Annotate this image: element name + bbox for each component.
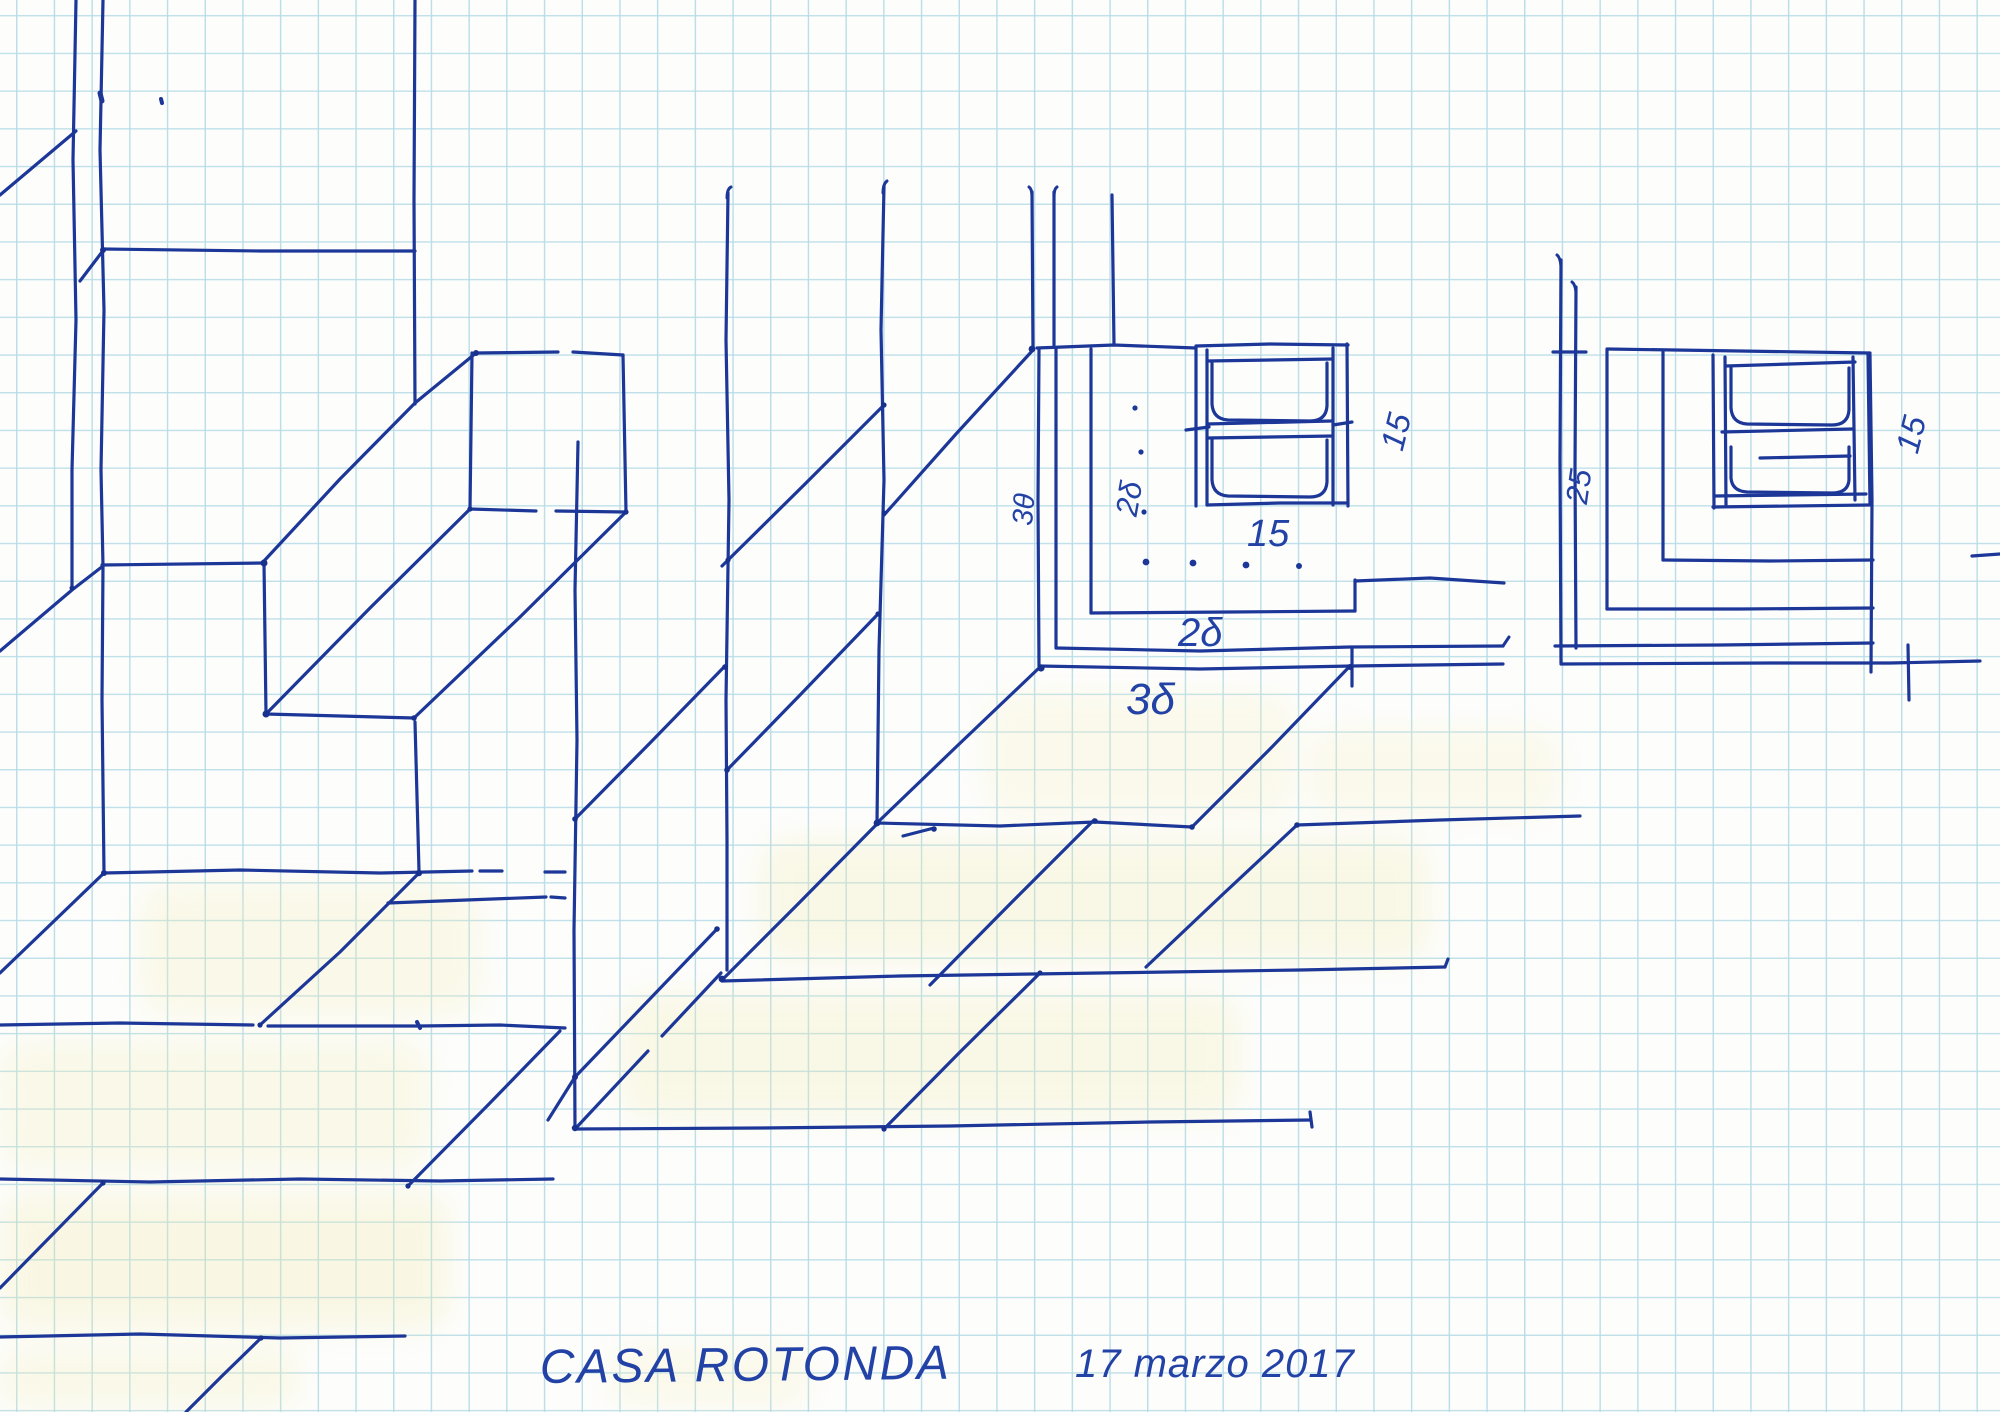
svg-text:CASA ROTONDA: CASA ROTONDA: [540, 1337, 952, 1394]
svg-text:25: 25: [1559, 466, 1599, 507]
svg-text:2δ: 2δ: [1109, 478, 1150, 520]
svg-text:3θ: 3θ: [1007, 492, 1042, 527]
svg-text:17 marzo 2017: 17 marzo 2017: [1075, 1342, 1356, 1386]
svg-text:3δ: 3δ: [1126, 675, 1175, 724]
svg-text:2δ: 2δ: [1177, 611, 1223, 655]
svg-text:15: 15: [1247, 513, 1290, 555]
